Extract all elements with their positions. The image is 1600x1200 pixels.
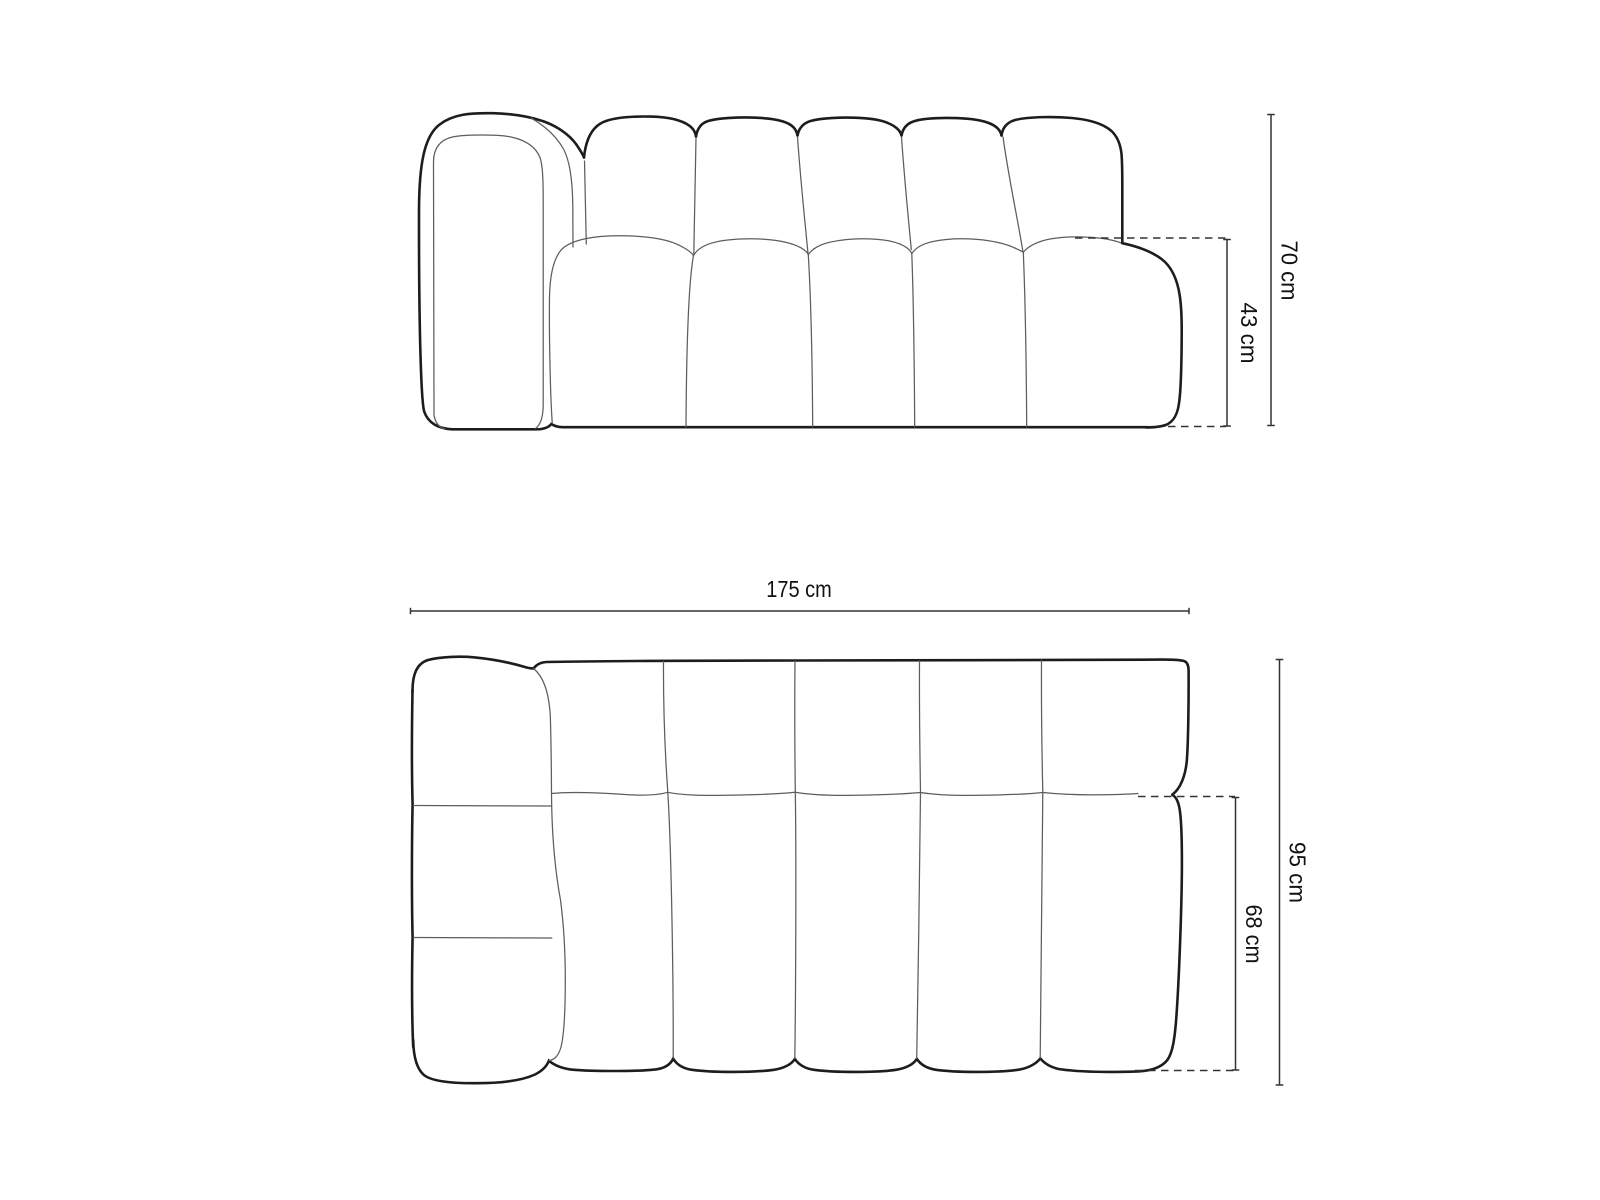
svg-text:95 cm: 95 cm [1285, 842, 1311, 903]
svg-text:175 cm: 175 cm [766, 576, 832, 602]
svg-text:68 cm: 68 cm [1241, 905, 1267, 964]
svg-text:70 cm: 70 cm [1277, 241, 1303, 301]
svg-text:43 cm: 43 cm [1236, 303, 1262, 364]
